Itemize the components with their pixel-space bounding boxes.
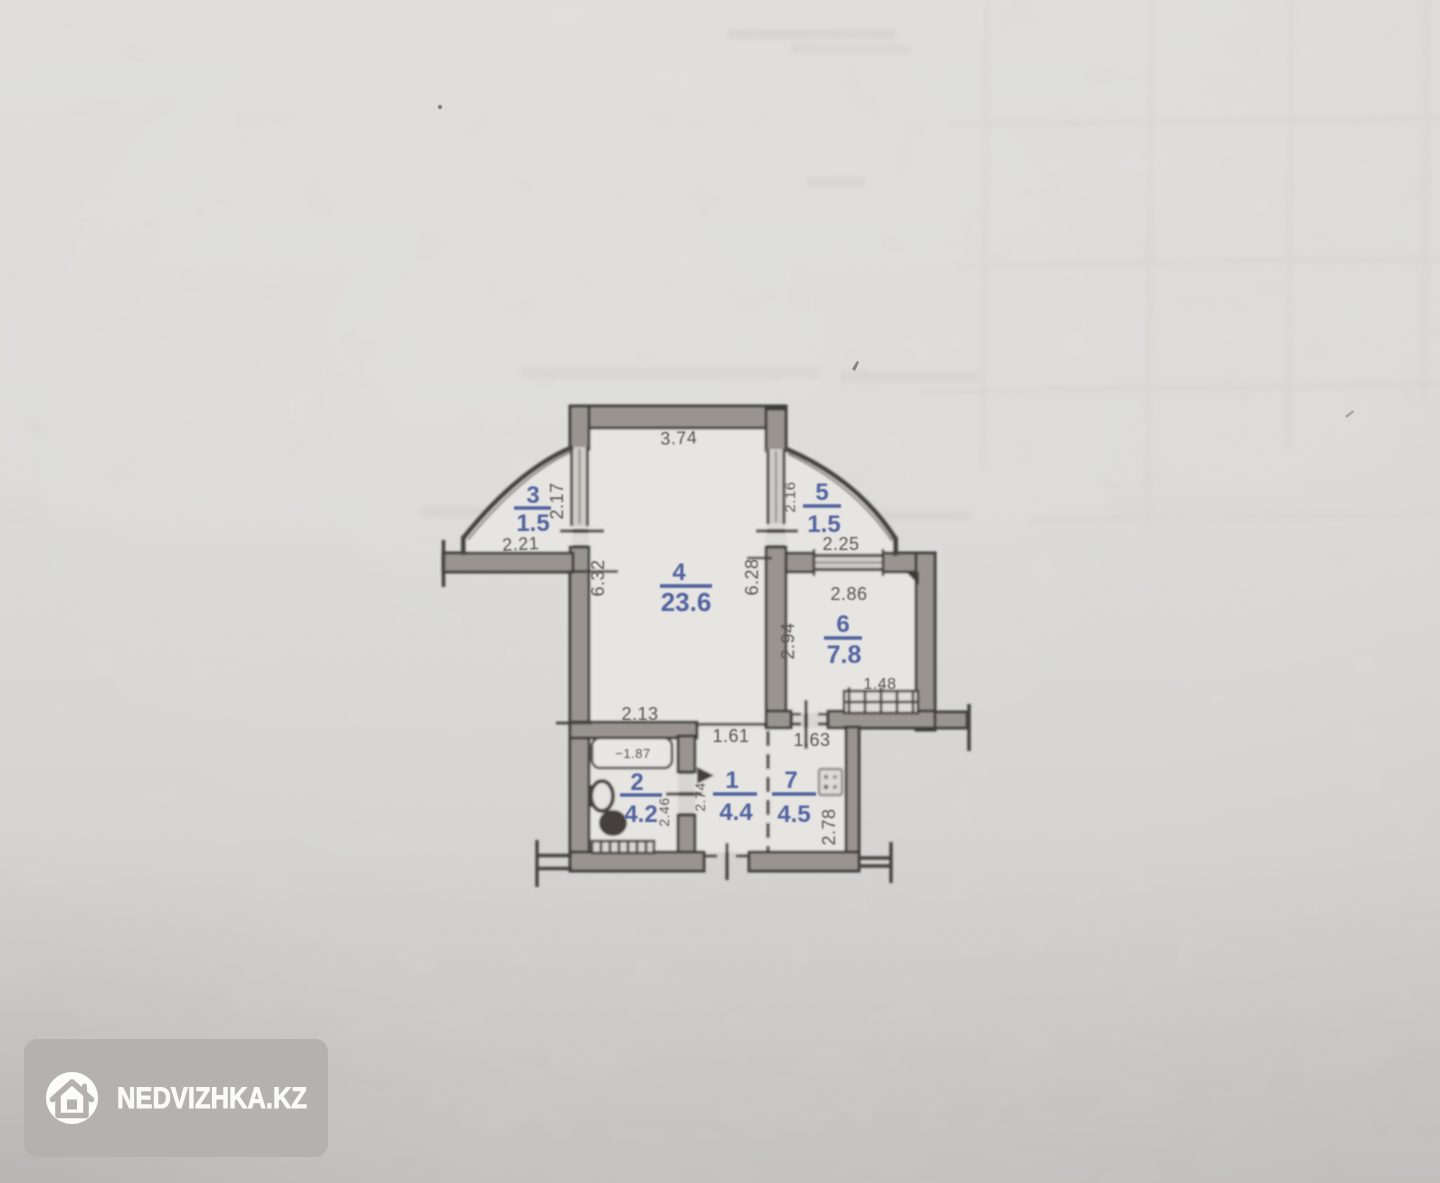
svg-text:2.94: 2.94 bbox=[778, 622, 798, 659]
svg-text:2.17: 2.17 bbox=[547, 482, 567, 519]
svg-text:1.48: 1.48 bbox=[863, 676, 896, 693]
svg-text:−1.87: −1.87 bbox=[615, 746, 650, 761]
svg-text:6: 6 bbox=[836, 611, 849, 638]
svg-text:7.8: 7.8 bbox=[827, 641, 862, 669]
svg-text:2.16: 2.16 bbox=[782, 481, 799, 512]
svg-text:6.32: 6.32 bbox=[588, 559, 608, 596]
svg-text:2.46: 2.46 bbox=[656, 797, 672, 826]
svg-text:23.6: 23.6 bbox=[661, 587, 712, 617]
svg-text:1.63: 1.63 bbox=[793, 730, 830, 750]
svg-text:2.13: 2.13 bbox=[621, 704, 658, 724]
svg-text:2.74: 2.74 bbox=[692, 782, 708, 811]
svg-text:1.5: 1.5 bbox=[807, 511, 840, 538]
svg-text:1.61: 1.61 bbox=[712, 726, 749, 746]
svg-text:1.5: 1.5 bbox=[516, 510, 549, 537]
svg-text:3.74: 3.74 bbox=[660, 427, 698, 448]
svg-text:4.4: 4.4 bbox=[719, 799, 753, 826]
svg-text:5: 5 bbox=[815, 479, 828, 506]
svg-text:7: 7 bbox=[784, 767, 797, 794]
svg-text:4: 4 bbox=[672, 559, 686, 586]
svg-text:4.5: 4.5 bbox=[777, 801, 810, 828]
svg-text:4.2: 4.2 bbox=[624, 801, 657, 828]
svg-text:NEDVIZHKA.KZ: NEDVIZHKA.KZ bbox=[117, 1082, 307, 1115]
svg-text:2.78: 2.78 bbox=[819, 808, 839, 845]
svg-text:2: 2 bbox=[630, 769, 643, 796]
svg-text:6.28: 6.28 bbox=[742, 558, 762, 595]
svg-text:1: 1 bbox=[725, 767, 738, 794]
svg-text:3: 3 bbox=[526, 482, 539, 509]
svg-text:2.86: 2.86 bbox=[830, 584, 867, 604]
